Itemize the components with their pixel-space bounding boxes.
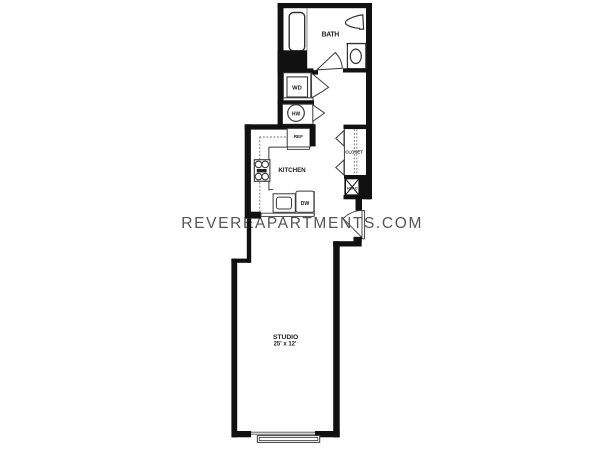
svg-text:WD: WD	[292, 85, 302, 91]
svg-text:STUDIO: STUDIO	[273, 334, 298, 341]
svg-text:REF: REF	[294, 134, 303, 139]
svg-text:CLOSET: CLOSET	[345, 150, 363, 155]
svg-text:HW: HW	[292, 111, 301, 117]
svg-text:BATH: BATH	[322, 31, 340, 38]
svg-text:DW: DW	[301, 201, 310, 207]
svg-text:25' x 12': 25' x 12'	[274, 342, 297, 348]
svg-text:KITCHEN: KITCHEN	[278, 167, 306, 174]
svg-text:HVAC: HVAC	[347, 185, 358, 190]
